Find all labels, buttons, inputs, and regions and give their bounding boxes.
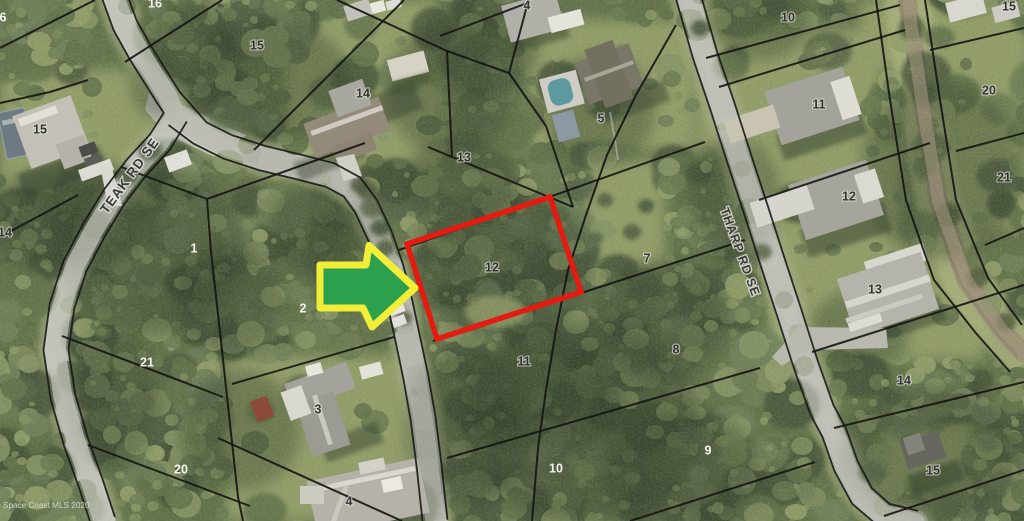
svg-text:12: 12 [485,261,499,275]
svg-text:4: 4 [346,495,353,509]
svg-text:2: 2 [300,302,307,316]
svg-text:14: 14 [0,226,12,240]
svg-text:10: 10 [549,462,563,476]
svg-text:11: 11 [517,355,530,369]
svg-text:13: 13 [868,283,882,297]
svg-text:4: 4 [524,0,531,13]
svg-text:10: 10 [781,11,795,25]
svg-text:3: 3 [315,403,322,417]
svg-text:7: 7 [644,252,651,266]
svg-text:15: 15 [33,123,47,137]
svg-text:15: 15 [926,464,940,478]
svg-text:15: 15 [1002,0,1016,14]
svg-text:16: 16 [148,0,162,11]
svg-text:21: 21 [997,171,1011,185]
svg-text:1: 1 [191,242,198,256]
svg-text:21: 21 [140,356,154,370]
svg-text:13: 13 [457,151,471,165]
svg-text:20: 20 [174,463,188,477]
svg-text:Space Coast MLS 2020: Space Coast MLS 2020 [3,501,90,510]
svg-text:9: 9 [705,444,712,458]
svg-text:11: 11 [812,98,825,112]
svg-text:8: 8 [673,343,680,357]
svg-text:6: 6 [0,11,7,25]
svg-text:5: 5 [598,112,605,126]
svg-text:14: 14 [897,374,911,388]
svg-text:14: 14 [356,87,370,101]
svg-text:12: 12 [842,190,856,204]
svg-text:15: 15 [250,39,264,53]
svg-text:20: 20 [982,84,996,98]
